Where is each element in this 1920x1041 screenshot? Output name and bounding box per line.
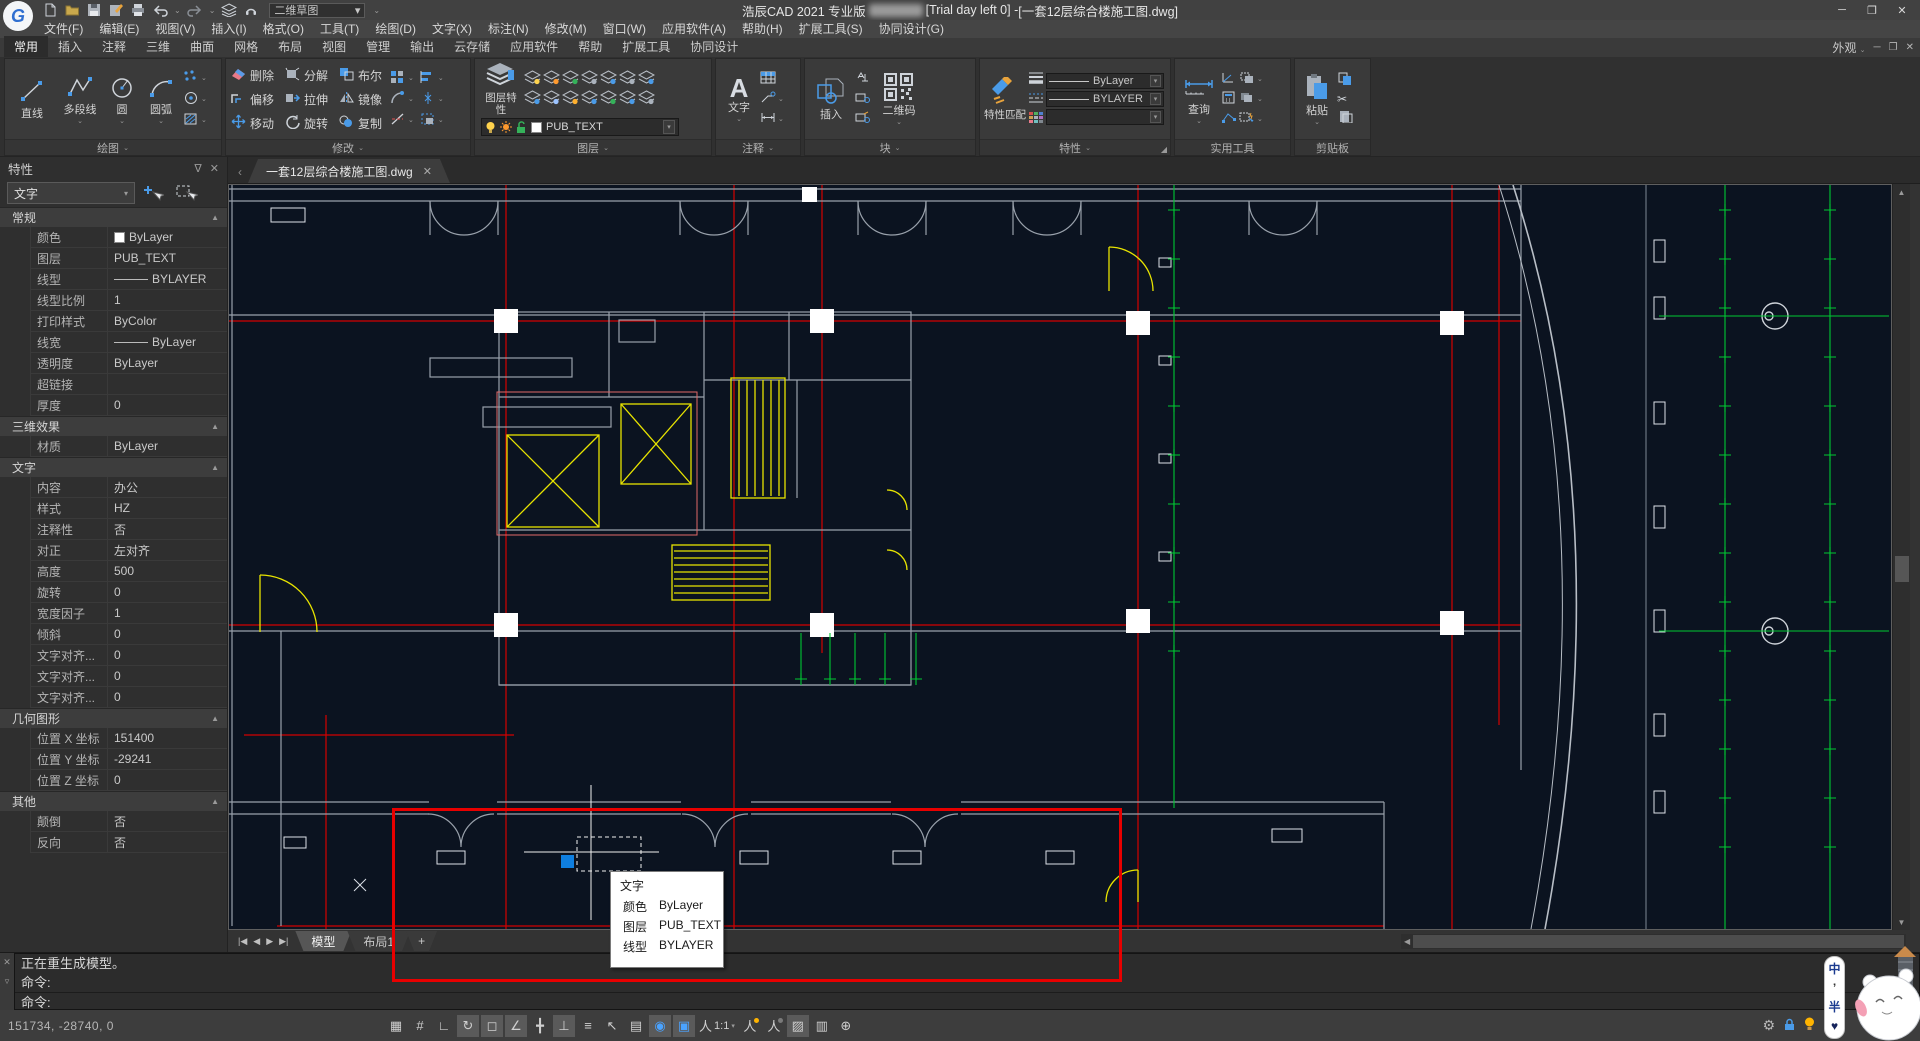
properties-title: 特性 [8, 159, 33, 178]
layout-tab[interactable]: 布局1 [347, 931, 410, 951]
ribbon-tab[interactable]: 应用软件 [500, 36, 568, 57]
properties-rows: 常规▲颜色ByLayer图层PUB_TEXT线型BYLAYER线型比例1打印样式… [0, 207, 227, 853]
angle-snap-toggle[interactable]: ∠ [505, 1015, 527, 1037]
snap-toggle[interactable]: ▦ [385, 1015, 407, 1037]
paste-special-icon[interactable] [1337, 110, 1353, 126]
layer-tool-icon[interactable] [638, 90, 655, 108]
layers-overlap-icon[interactable] [1239, 91, 1255, 107]
property-row[interactable]: 图层PUB_TEXT [30, 248, 227, 269]
property-row[interactable]: 线型BYLAYER [30, 269, 227, 290]
panel-title-layer[interactable]: 图层⌄ [475, 139, 711, 155]
document-tab-bar: ‹ 一套12层综合楼施工图.dwg ✕ [228, 157, 1920, 184]
move-icon [230, 114, 247, 132]
ribbon-close-icon[interactable]: ✕ [1906, 42, 1914, 53]
appearance-menu[interactable]: 外观 ⌄ [1832, 39, 1865, 56]
curtain-wall-arc [1499, 185, 1576, 929]
text-icon: A [730, 75, 749, 101]
insert-block-icon [816, 77, 846, 108]
paste-icon [1304, 73, 1330, 104]
measure-icon [1184, 74, 1214, 103]
document-tab-close-icon[interactable]: ✕ [423, 165, 432, 178]
tooltip-title: 文字 [620, 877, 723, 894]
ribbon-panel-clipboard: 粘贴⌄ ✂ 剪贴板 [1294, 58, 1371, 156]
block-attr-icon-2[interactable] [855, 91, 871, 107]
insert-block-button[interactable]: 插入 [809, 77, 853, 121]
ribbon-panel-block: 插入 二维码⌄ 块⌄ [804, 58, 976, 156]
rotate-icon [284, 114, 301, 132]
quick-properties-toggle[interactable]: ▣ [673, 1015, 695, 1037]
layer-tool-icon[interactable] [600, 70, 617, 88]
drawing-canvas[interactable] [228, 184, 1892, 930]
color-combo[interactable]: ByLayer▾ [1046, 73, 1164, 89]
mirror-button[interactable]: 镜像 [338, 90, 382, 108]
command-pin-icon[interactable]: ▿ [5, 976, 10, 987]
line-icon [19, 78, 45, 107]
property-row[interactable]: 样式HZ [30, 498, 227, 519]
clean-screen-toggle[interactable]: ⊕ [835, 1015, 857, 1037]
layer-tool-icon[interactable] [524, 90, 541, 108]
save-as-icon[interactable] [108, 2, 124, 18]
layer-properties-icon [486, 62, 516, 91]
property-row[interactable]: 文字对齐...0 [30, 687, 227, 708]
ribbon-panel-annotate: A 文字⌄ ⌄ ⌄ 注释⌄ [715, 58, 801, 156]
application-window: G ⌄ ⌄ 二维草图▾ ⌄ 浩辰CAD 2021 专业版 [Trial day … [0, 0, 1920, 1041]
panel-title-properties[interactable]: 特性⌄◢ [980, 139, 1170, 155]
ribbon-tab-row: 常用插入注释三维曲面网格布局视图管理输出云存储应用软件帮助扩展工具协同设计 [0, 38, 1920, 57]
new-file-icon[interactable] [42, 2, 58, 18]
select-objects-icon[interactable] [173, 182, 201, 204]
sun-icon [500, 121, 512, 133]
ribbon-panel-utilities: 查询⌄ ⌄ ⌄ ⌄ 实用工具 [1174, 58, 1291, 156]
door-symbols-bottom [428, 814, 958, 847]
ribbon-tab[interactable]: 云存储 [444, 36, 500, 57]
property-row[interactable]: 厚度0 [30, 395, 227, 416]
stretch-button[interactable]: 拉伸 [284, 90, 328, 108]
copy-clip-icon[interactable] [1337, 72, 1353, 88]
status-bar: 151734, -28740, 0 ▦#∟↻◻∠╋⊥≡↖▤◉▣人1:1▾人人▨▥… [0, 1010, 1920, 1041]
tips-bulb-icon[interactable] [1804, 1017, 1815, 1034]
property-row[interactable]: 线宽ByLayer [30, 332, 227, 353]
minimize-button[interactable]: ─ [1828, 1, 1856, 19]
ribbon-tab[interactable]: 网格 [224, 36, 268, 57]
properties-list-button[interactable]: ▥ [811, 1015, 833, 1037]
properties-section-header[interactable]: 常规▲ [0, 207, 227, 227]
toggle-pickadd-icon[interactable] [140, 182, 168, 204]
property-row[interactable]: 文字对齐...0 [30, 645, 227, 666]
layer-cycle-toggle[interactable]: ▤ [625, 1015, 647, 1037]
quick-access-toolbar: ⌄ ⌄ [42, 2, 259, 18]
selection-highlight-outline [497, 392, 697, 535]
point-tools-icon[interactable] [183, 70, 199, 87]
offset-icon [230, 90, 247, 108]
hatch-tools-icon[interactable] [183, 112, 199, 129]
layout-tab[interactable]: 模型 [295, 931, 351, 951]
selection-preview-toggle[interactable]: ↖ [601, 1015, 623, 1037]
match-properties-button[interactable]: 特性匹配 [984, 77, 1026, 121]
layer-properties-button[interactable]: 图层特性 [481, 62, 521, 116]
first-layout-icon[interactable]: |◀ [238, 936, 247, 947]
command-line-panel: ✕ ▿ 正在重生成模型。 命令: 命令: [0, 952, 1920, 1010]
panel-title-modify[interactable]: 修改⌄ [226, 139, 470, 155]
layer-tool-icon[interactable] [600, 90, 617, 108]
ribbon-restore-icon[interactable]: ❐ [1889, 42, 1898, 53]
scroll-up-icon[interactable]: ▲ [1893, 184, 1910, 200]
property-row[interactable]: 材质ByLayer [30, 436, 227, 457]
ribbon-tab[interactable]: 输出 [400, 36, 444, 57]
polar-tracking-toggle[interactable]: ↻ [457, 1015, 479, 1037]
green-reference-lines [795, 185, 1889, 929]
properties-section-header[interactable]: 文字▲ [0, 457, 227, 477]
stretch-icon [284, 90, 301, 108]
panel-title-block[interactable]: 块⌄ [805, 139, 975, 155]
ribbon: 直线 多段线⌄ 圆⌄ 圆弧⌄ ⌄ ⌄ ⌄ [0, 57, 1920, 157]
layer-tool-icon[interactable] [581, 90, 598, 108]
scale-tools-icon[interactable] [420, 112, 436, 129]
layer-selector[interactable]: PUB_TEXT ▾ [481, 118, 679, 136]
properties-section-header[interactable]: 几何图形▲ [0, 708, 227, 728]
property-row[interactable]: 线型比例1 [30, 290, 227, 311]
horizontal-scrollbar[interactable]: ◀ [1401, 934, 1906, 949]
lock-ui-icon[interactable] [1784, 1018, 1795, 1034]
block-attr-icon-3[interactable] [855, 111, 871, 127]
polyline-icon [67, 74, 93, 103]
fillet-tools-icon[interactable] [390, 91, 406, 108]
toolbar-overflow-icon[interactable]: ⌄ [373, 6, 380, 15]
text-grip [561, 855, 574, 868]
command-history-line: 正在重生成模型。 [15, 954, 1919, 973]
lineweight-icon[interactable] [1028, 71, 1044, 87]
copy-icon [338, 114, 355, 132]
panel-title-annotate[interactable]: 注释⌄ [716, 139, 800, 155]
linetype-icon[interactable] [1028, 91, 1044, 107]
ime-mode-char[interactable]: 中 [1828, 963, 1840, 975]
layer-tool-icon[interactable] [543, 70, 560, 88]
panel-title-utilities[interactable]: 实用工具 [1175, 139, 1290, 155]
match-properties-icon [990, 77, 1020, 108]
prev-layout-icon[interactable]: ◀ [253, 936, 260, 947]
drawing-area: ‹ 一套12层综合楼施工图.dwg ✕ [228, 157, 1920, 952]
arc-button[interactable]: 圆弧⌄ [141, 74, 181, 125]
property-row[interactable]: 位置 Z 坐标0 [30, 770, 227, 791]
ime-mode-char[interactable]: ’ [1833, 982, 1836, 994]
ribbon-tab[interactable]: 注释 [92, 36, 136, 57]
next-layout-icon[interactable]: ▶ [266, 936, 273, 947]
text-button[interactable]: A 文字⌄ [720, 75, 758, 123]
selection-cycling-toggle[interactable]: ◉ [649, 1015, 671, 1037]
ime-toolbar[interactable]: 中’半♥ [1824, 956, 1845, 1039]
linetype-combo[interactable]: BYLAYER▾ [1046, 91, 1164, 107]
layer-tool-icon[interactable] [562, 70, 579, 88]
title-bar: G ⌄ ⌄ 二维草图▾ ⌄ 浩辰CAD 2021 专业版 [Trial day … [0, 0, 1920, 20]
undo-dropdown-icon[interactable]: ⌄ [174, 6, 181, 15]
layer-tool-icon[interactable] [619, 90, 636, 108]
layout-tab-bar: |◀ ◀ ▶ ▶| 模型布局1+ ◀ [228, 930, 1920, 952]
property-row[interactable]: 注释性否 [30, 519, 227, 540]
scroll-left-icon[interactable]: ◀ [1401, 937, 1413, 946]
erase-icon [230, 66, 247, 84]
snap-tracking-toggle[interactable]: ╋ [529, 1015, 551, 1037]
layer-tool-icon[interactable] [543, 90, 560, 108]
arc-icon [148, 74, 174, 103]
property-row[interactable]: 位置 X 坐标151400 [30, 728, 227, 749]
door-symbols-top [430, 201, 1317, 235]
maximize-button[interactable]: ❐ [1858, 1, 1886, 19]
open-folder-icon[interactable] [64, 2, 80, 18]
annotation-visibility-toggle[interactable]: 人 [739, 1015, 761, 1037]
redo-icon[interactable] [187, 2, 203, 18]
horizontal-scroll-thumb[interactable] [1413, 935, 1904, 948]
explode-button[interactable]: 分解 [284, 66, 328, 84]
status-toggles: ▦#∟↻◻∠╋⊥≡↖▤◉▣人1:1▾人人▨▥⊕ [385, 1015, 857, 1037]
property-row[interactable]: 颜色ByLayer [30, 227, 227, 248]
close-button[interactable]: ✕ [1888, 1, 1916, 19]
coordinates-readout: 151734, -28740, 0 [8, 1019, 114, 1033]
auto-annotation-toggle[interactable]: 人 [763, 1015, 785, 1037]
qrcode-button[interactable]: 二维码⌄ [873, 73, 925, 126]
mascot-sticker [1848, 946, 1920, 1041]
panel-title-draw[interactable]: 绘图⌄ [5, 139, 221, 155]
circle-icon [109, 74, 135, 103]
layer-color-swatch [531, 122, 542, 133]
document-tab[interactable]: 一套12层综合楼施工图.dwg ✕ [248, 159, 450, 183]
panel-flyout-icon[interactable]: ◢ [1161, 145, 1167, 154]
window-symbols [271, 208, 1665, 891]
property-row[interactable]: 倾斜0 [30, 624, 227, 645]
ortho-toggle[interactable]: ∟ [433, 1015, 455, 1037]
vertical-scroll-thumb[interactable] [1895, 556, 1909, 582]
menu-item[interactable]: 协同设计(G) [871, 20, 952, 38]
scroll-down-icon[interactable]: ▼ [1893, 914, 1910, 930]
erase-button[interactable]: 删除 [230, 66, 274, 84]
property-row[interactable]: 宽度因子1 [30, 603, 227, 624]
lineweight-combo[interactable]: ▾ [1046, 109, 1164, 125]
property-row[interactable]: 反向否 [30, 832, 227, 853]
copy-button[interactable]: 复制 [338, 114, 382, 132]
ribbon-tab[interactable]: 扩展工具 [612, 36, 680, 57]
tab-scroll-left-icon[interactable]: ‹ [238, 165, 242, 179]
line-button[interactable]: 直线 [9, 78, 55, 120]
block-attr-icon-1[interactable] [855, 71, 871, 87]
command-input[interactable]: 命令: [15, 992, 1919, 1011]
property-row[interactable]: 高度500 [30, 561, 227, 582]
vertical-scrollbar[interactable]: ▲ ▼ [1892, 184, 1910, 930]
ribbon-tab[interactable]: 布局 [268, 36, 312, 57]
boolean-icon [338, 66, 355, 84]
polyline-edit-icon[interactable] [1221, 111, 1237, 127]
layer-dropdown-icon[interactable]: ▾ [663, 120, 675, 134]
axis-bubbles [1762, 303, 1788, 644]
calculator-icon[interactable] [1221, 91, 1237, 107]
quick-select-icon[interactable] [1239, 111, 1255, 127]
print-icon[interactable] [130, 2, 146, 18]
offset-button[interactable]: 偏移 [230, 90, 274, 108]
panel-title-clipboard[interactable]: 剪贴板 [1295, 139, 1370, 155]
table-icon[interactable] [760, 71, 776, 87]
layer-tool-icon[interactable] [619, 70, 636, 88]
layer-tool-icon[interactable] [581, 70, 598, 88]
save-icon[interactable] [86, 2, 102, 18]
circle-button[interactable]: 圆⌄ [105, 74, 139, 125]
property-row[interactable]: 对正左对齐 [30, 540, 227, 561]
ribbon-panel-properties: 特性匹配 ByLayer▾ BYLAYER▾ ▾ 特性⌄◢ [979, 58, 1171, 156]
grid-axis-lines [229, 185, 1521, 929]
group-icon[interactable] [1239, 71, 1255, 87]
color-palette-icon[interactable] [1028, 111, 1044, 127]
move-button[interactable]: 移动 [230, 114, 274, 132]
command-close-icon[interactable]: ✕ [3, 957, 11, 968]
properties-palette: 特性 ∇✕ 文字▾ 常规▲颜色ByLayer图层PUB_TEXT线型BYLAYE… [0, 157, 228, 952]
app-logo-icon[interactable]: G [3, 1, 33, 31]
palette-close-icon[interactable]: ✕ [210, 162, 219, 175]
ribbon-panel-draw: 直线 多段线⌄ 圆⌄ 圆弧⌄ ⌄ ⌄ ⌄ [4, 58, 222, 156]
property-row[interactable]: 颠倒否 [30, 811, 227, 832]
paste-button[interactable]: 粘贴⌄ [1299, 73, 1335, 126]
align-tools-icon[interactable] [420, 70, 436, 87]
property-row[interactable]: 内容办公 [30, 477, 227, 498]
palette-pin-icon[interactable]: ∇ [194, 162, 201, 175]
ducs-toggle[interactable]: ⊥ [553, 1015, 575, 1037]
explode-icon [284, 66, 301, 84]
properties-section-header[interactable]: 三维效果▲ [0, 416, 227, 436]
layer-tool-icon[interactable] [562, 90, 579, 108]
object-snap-toggle[interactable]: ◻ [481, 1015, 503, 1037]
rotate-button[interactable]: 旋转 [284, 114, 328, 132]
layer-tools-grid [523, 69, 656, 109]
leader-icon[interactable] [760, 91, 776, 107]
ribbon-panel-modify: 删除 分解 布尔 偏移 拉伸 镜像 移动 旋转 复制 ⌄ ⌄ ⌄ ⌄ [225, 58, 471, 156]
ribbon-tab[interactable]: 三维 [136, 36, 180, 57]
break-tools-icon[interactable] [420, 91, 436, 108]
menu-item[interactable]: 扩展工具(S) [791, 20, 871, 38]
ime-mode-char[interactable]: 半 [1828, 1001, 1840, 1013]
undo-icon[interactable] [152, 2, 168, 18]
ime-mode-char[interactable]: ♥ [1831, 1020, 1838, 1032]
property-row[interactable]: 透明度ByLayer [30, 353, 227, 374]
new-layout-tab[interactable]: + [406, 931, 437, 951]
wall-lines [229, 185, 1646, 929]
ribbon-panel-layer: 图层特性 PUB_TEXT ▾ 图层⌄ [474, 58, 712, 156]
property-row[interactable]: 打印样式ByColor [30, 311, 227, 332]
trim-tools-icon[interactable] [390, 112, 406, 129]
ribbon-tab[interactable]: 协同设计 [680, 36, 748, 57]
ribbon-tab[interactable]: 管理 [356, 36, 400, 57]
elevator-and-stairs [260, 247, 1153, 902]
array-tools-icon[interactable] [390, 70, 406, 87]
layer-stack-icon[interactable] [221, 2, 237, 18]
ribbon-tab[interactable]: 插入 [48, 36, 92, 57]
ribbon-tab[interactable]: 帮助 [568, 36, 612, 57]
support-headset-icon[interactable] [243, 2, 259, 18]
layer-tool-icon[interactable] [524, 70, 541, 88]
property-row[interactable]: 旋转0 [30, 582, 227, 603]
last-layout-icon[interactable]: ▶| [279, 936, 288, 947]
qrcode-icon [884, 73, 914, 104]
transparency-toggle[interactable]: ▨ [787, 1015, 809, 1037]
redacted-license-blur [869, 4, 923, 17]
mirror-icon [338, 90, 355, 108]
properties-section-header[interactable]: 其他▲ [0, 791, 227, 811]
measure-button[interactable]: 查询⌄ [1179, 74, 1219, 125]
layer-tool-icon[interactable] [638, 70, 655, 88]
command-history-line: 命令: [15, 973, 1919, 992]
property-row[interactable]: 文字对齐...0 [30, 666, 227, 687]
redo-dropdown-icon[interactable]: ⌄ [209, 6, 216, 15]
boolean-button[interactable]: 布尔 [338, 66, 382, 84]
cut-icon[interactable]: ✂ [1337, 92, 1347, 106]
quick-properties-tooltip: 文字 颜色ByLayer 图层PUB_TEXT 线型BYLAYER [610, 871, 724, 968]
ribbon-tab[interactable]: 曲面 [180, 36, 224, 57]
grid-toggle[interactable]: # [409, 1015, 431, 1037]
annotation-scale-control[interactable]: 人1:1▾ [697, 1015, 737, 1037]
settings-gear-icon[interactable]: ⚙ [1762, 1017, 1775, 1034]
command-gutter: ✕ ▿ [0, 953, 14, 1010]
bulb-on-icon [485, 121, 496, 134]
ribbon-tab[interactable]: 常用 [4, 36, 48, 57]
polyline-button[interactable]: 多段线⌄ [57, 74, 103, 125]
property-row[interactable]: 位置 Y 坐标-29241 [30, 749, 227, 770]
property-row[interactable]: 超链接 [30, 374, 227, 395]
ribbon-minimize-icon[interactable]: ─ [1874, 42, 1881, 53]
dimension-icon[interactable] [760, 111, 776, 127]
donut-tools-icon[interactable] [183, 91, 199, 108]
id-point-icon[interactable] [1221, 71, 1237, 87]
object-type-selector[interactable]: 文字▾ [7, 182, 135, 204]
grip-squares [494, 187, 1464, 637]
linetype-display-toggle[interactable]: ≡ [577, 1015, 599, 1037]
ribbon-tab[interactable]: 视图 [312, 36, 356, 57]
unlock-icon [516, 121, 527, 134]
workspace-selector[interactable]: 二维草图▾ [269, 3, 365, 18]
